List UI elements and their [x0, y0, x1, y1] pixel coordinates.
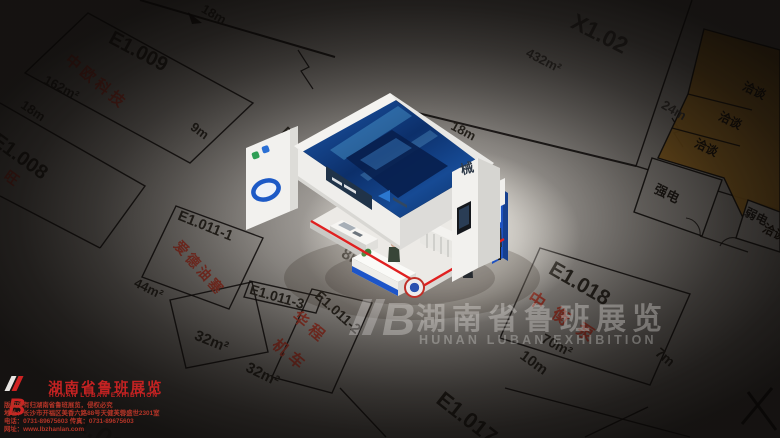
footer-address-line: 地址：长沙市开福区美香六路88号天健芙蓉盛世2301室 [4, 410, 160, 418]
left-logo-wall [246, 126, 298, 230]
watermark-logo: B [356, 292, 415, 346]
footer-phone-line: 电话：0731-89675603 传真：0731-89675603 [4, 418, 134, 426]
wall-line-top [140, 0, 335, 57]
plan-line-bottom [340, 388, 386, 437]
footer-copyright-line: 版权所有归湖南省鲁班展览，侵权必究 [4, 402, 113, 410]
booth-outline-e1008b [0, 196, 100, 248]
footer-website-line: 网址：www.lbzhanlan.com [4, 426, 84, 434]
watermark-en: HUNAN LUBAN EXHIBITION [419, 333, 657, 347]
booth-outline-e1017 [505, 388, 690, 437]
column-cross-symbol [742, 388, 776, 430]
watermark-cn: 湖南省鲁班展览 [416, 294, 668, 338]
footer-en: HUNAN LUBAN EXHIBITION [49, 392, 158, 399]
exhibition-render: E1.009 中欧科技 162m² 18m 18m 9m E1.008 旺 E1… [0, 0, 780, 438]
watermark-logo-letter: B [382, 293, 415, 345]
